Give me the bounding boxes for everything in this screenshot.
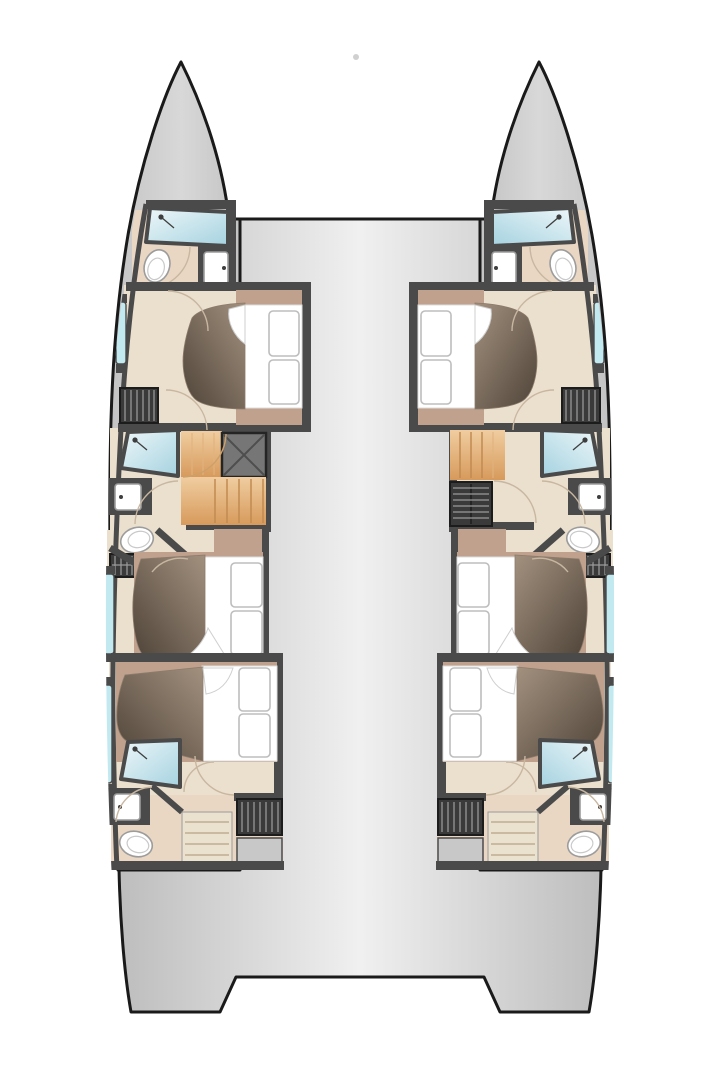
port-mid-companionway: Companionway stairs with deck hatch [181,431,266,525]
pillow [239,668,270,711]
shower [146,208,228,246]
hull-window [104,566,115,662]
wardrobe-louver [120,388,158,423]
stairs-landing [181,431,222,477]
pillow [269,360,299,404]
stairs [182,812,232,866]
shower [121,430,178,476]
deck-hatch [222,433,266,477]
engine-hatch: Engine hatch [237,799,282,866]
stairs [450,430,505,480]
pillow [231,563,262,607]
catamaran-floorplan: Catamaran yacht lower-deck floor plan, t… [0,0,720,1080]
deck-hatch [450,482,492,526]
faucet-icon [119,495,123,499]
double-bed [133,552,263,660]
hull-window [102,677,113,792]
wall [111,653,283,662]
washbasin [115,484,141,510]
pillow [231,611,262,655]
pillow [269,311,299,356]
hatch-slats [242,802,278,832]
stairs [181,477,266,525]
faucet-icon [222,266,226,270]
wall [126,282,311,291]
catamaran-floorplan-page: Catamaran yacht lower-deck floor plan, t… [0,0,720,1080]
bow-marker-dot [353,54,359,60]
aft-companionway-stairs: Aft companionway stairs [182,812,232,866]
duvet [133,555,205,658]
shower [121,740,180,787]
wall-hull-stern [111,861,284,870]
pillow [239,714,270,757]
